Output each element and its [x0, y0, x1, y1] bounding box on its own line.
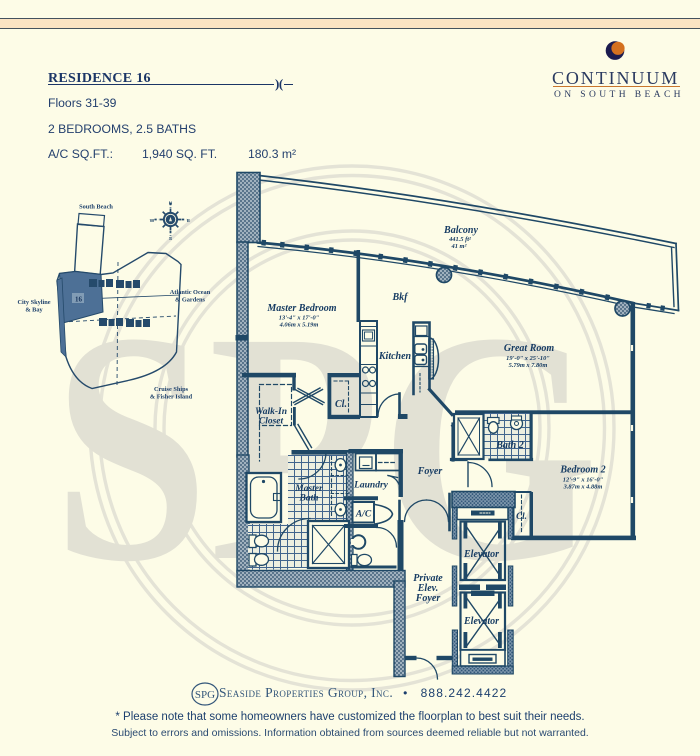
- svg-text:Kitchen: Kitchen: [378, 351, 412, 362]
- svg-text:Bedroom 2: Bedroom 2: [559, 465, 605, 476]
- svg-text:Closet: Closet: [259, 417, 284, 427]
- svg-text:3.87m x 4.88m: 3.87m x 4.88m: [563, 484, 603, 491]
- svg-text:41 m²: 41 m²: [451, 243, 468, 250]
- svg-text:Master: Master: [294, 484, 323, 494]
- svg-text:4.06m x 5.19m: 4.06m x 5.19m: [279, 322, 319, 329]
- svg-text:Master Bedroom: Master Bedroom: [266, 303, 336, 314]
- svg-text:SPG: SPG: [195, 689, 215, 701]
- svg-text:Bath 2: Bath 2: [495, 440, 524, 451]
- svg-text:Cruise Ships: Cruise Ships: [154, 386, 189, 393]
- svg-text:13'-4" x 17'-0": 13'-4" x 17'-0": [279, 315, 320, 322]
- svg-text:Elevator: Elevator: [463, 616, 499, 627]
- svg-text:N: N: [169, 201, 173, 207]
- svg-text:A/C: A/C: [355, 510, 372, 520]
- svg-text:Bath: Bath: [298, 494, 318, 504]
- svg-text:5.79m x 7.80m: 5.79m x 7.80m: [509, 362, 548, 369]
- svg-text:W: W: [150, 218, 155, 224]
- svg-text:12'-9" x 16'-0": 12'-9" x 16'-0": [563, 477, 604, 484]
- svg-text:Laundry: Laundry: [353, 481, 389, 491]
- svg-text:Foyer: Foyer: [415, 593, 441, 604]
- svg-text:Walk-In: Walk-In: [255, 407, 287, 417]
- svg-text:Balcony: Balcony: [443, 225, 478, 236]
- svg-text:& Fisher Island: & Fisher Island: [150, 394, 193, 401]
- svg-text:Great Room: Great Room: [504, 343, 555, 354]
- svg-text:South Beach: South Beach: [79, 204, 113, 211]
- svg-text:16: 16: [75, 296, 83, 304]
- svg-text:Elevator: Elevator: [463, 549, 499, 560]
- svg-text:Bkf: Bkf: [392, 292, 410, 303]
- svg-text:441.5 ft²: 441.5 ft²: [448, 236, 472, 243]
- svg-text:19'-0" x 25'-10": 19'-0" x 25'-10": [506, 355, 550, 362]
- svg-text:Cl.: Cl.: [335, 399, 347, 410]
- svg-text:Foyer: Foyer: [417, 466, 443, 477]
- svg-text:Atlantic Ocean: Atlantic Ocean: [170, 289, 211, 296]
- svg-text:& Bay: & Bay: [25, 307, 43, 314]
- svg-text:City Skyline: City Skyline: [17, 299, 50, 306]
- svg-text:Cl.: Cl.: [516, 511, 527, 521]
- svg-text:& Gardens: & Gardens: [175, 297, 205, 304]
